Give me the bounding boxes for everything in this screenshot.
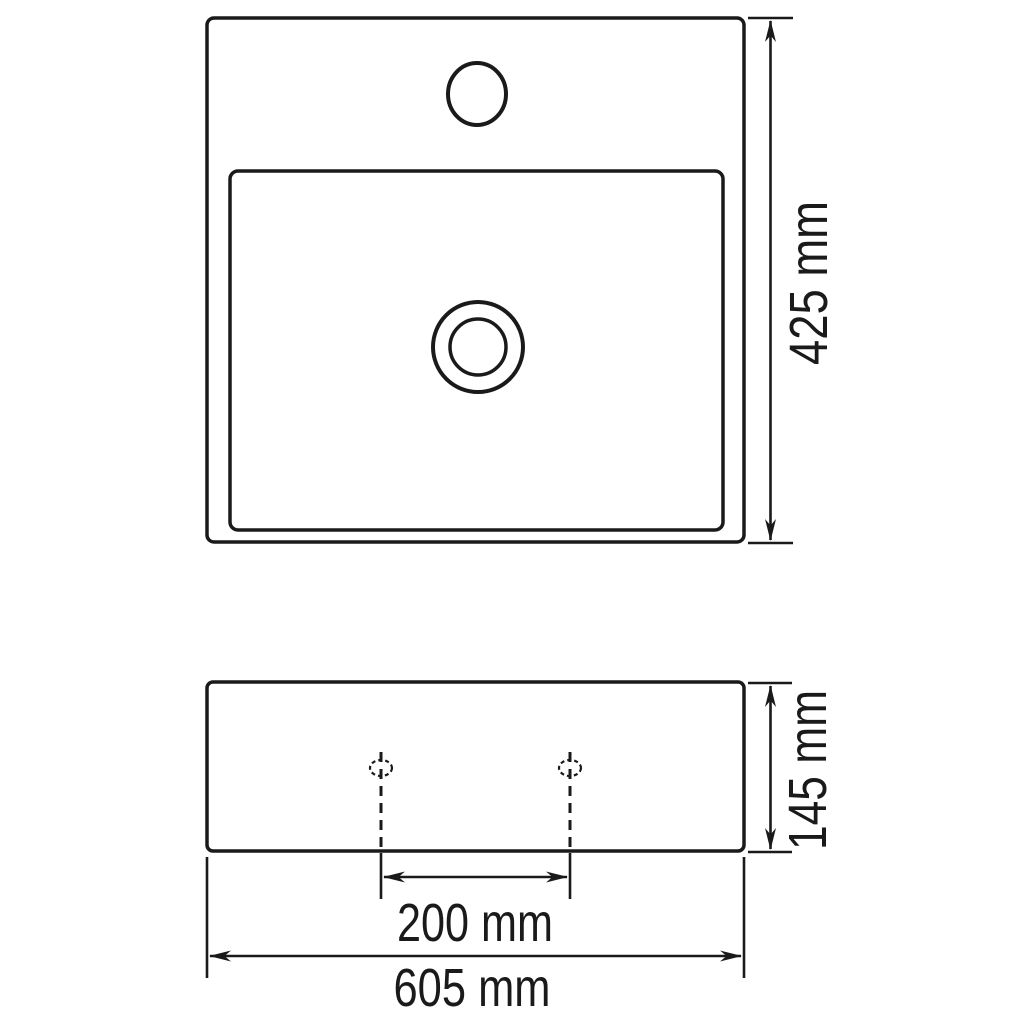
dim-425: 425 mm [748, 18, 839, 543]
basin-bowl-outline [230, 171, 723, 530]
dim-200-label: 200 mm [397, 893, 553, 953]
faucet-hole [448, 63, 506, 125]
front-body-outline [207, 682, 744, 851]
dim-145-label: 145 mm [778, 690, 838, 850]
front-view: 200 mm 605 mm 145 mm [207, 682, 838, 1018]
drain-inner-circle [450, 319, 506, 375]
top-view: 425 mm [207, 18, 839, 543]
dim-605-label: 605 mm [394, 958, 551, 1018]
drain-outer-circle [433, 302, 523, 392]
dim-145: 145 mm [748, 683, 838, 852]
sink-dimension-drawing: 425 mm 200 mm 605 mm [0, 0, 1024, 1024]
basin-outer-outline [207, 18, 744, 542]
dim-200: 200 mm [381, 853, 570, 953]
dim-425-label: 425 mm [779, 201, 839, 365]
drawing-canvas: 425 mm 200 mm 605 mm [0, 0, 1024, 1024]
